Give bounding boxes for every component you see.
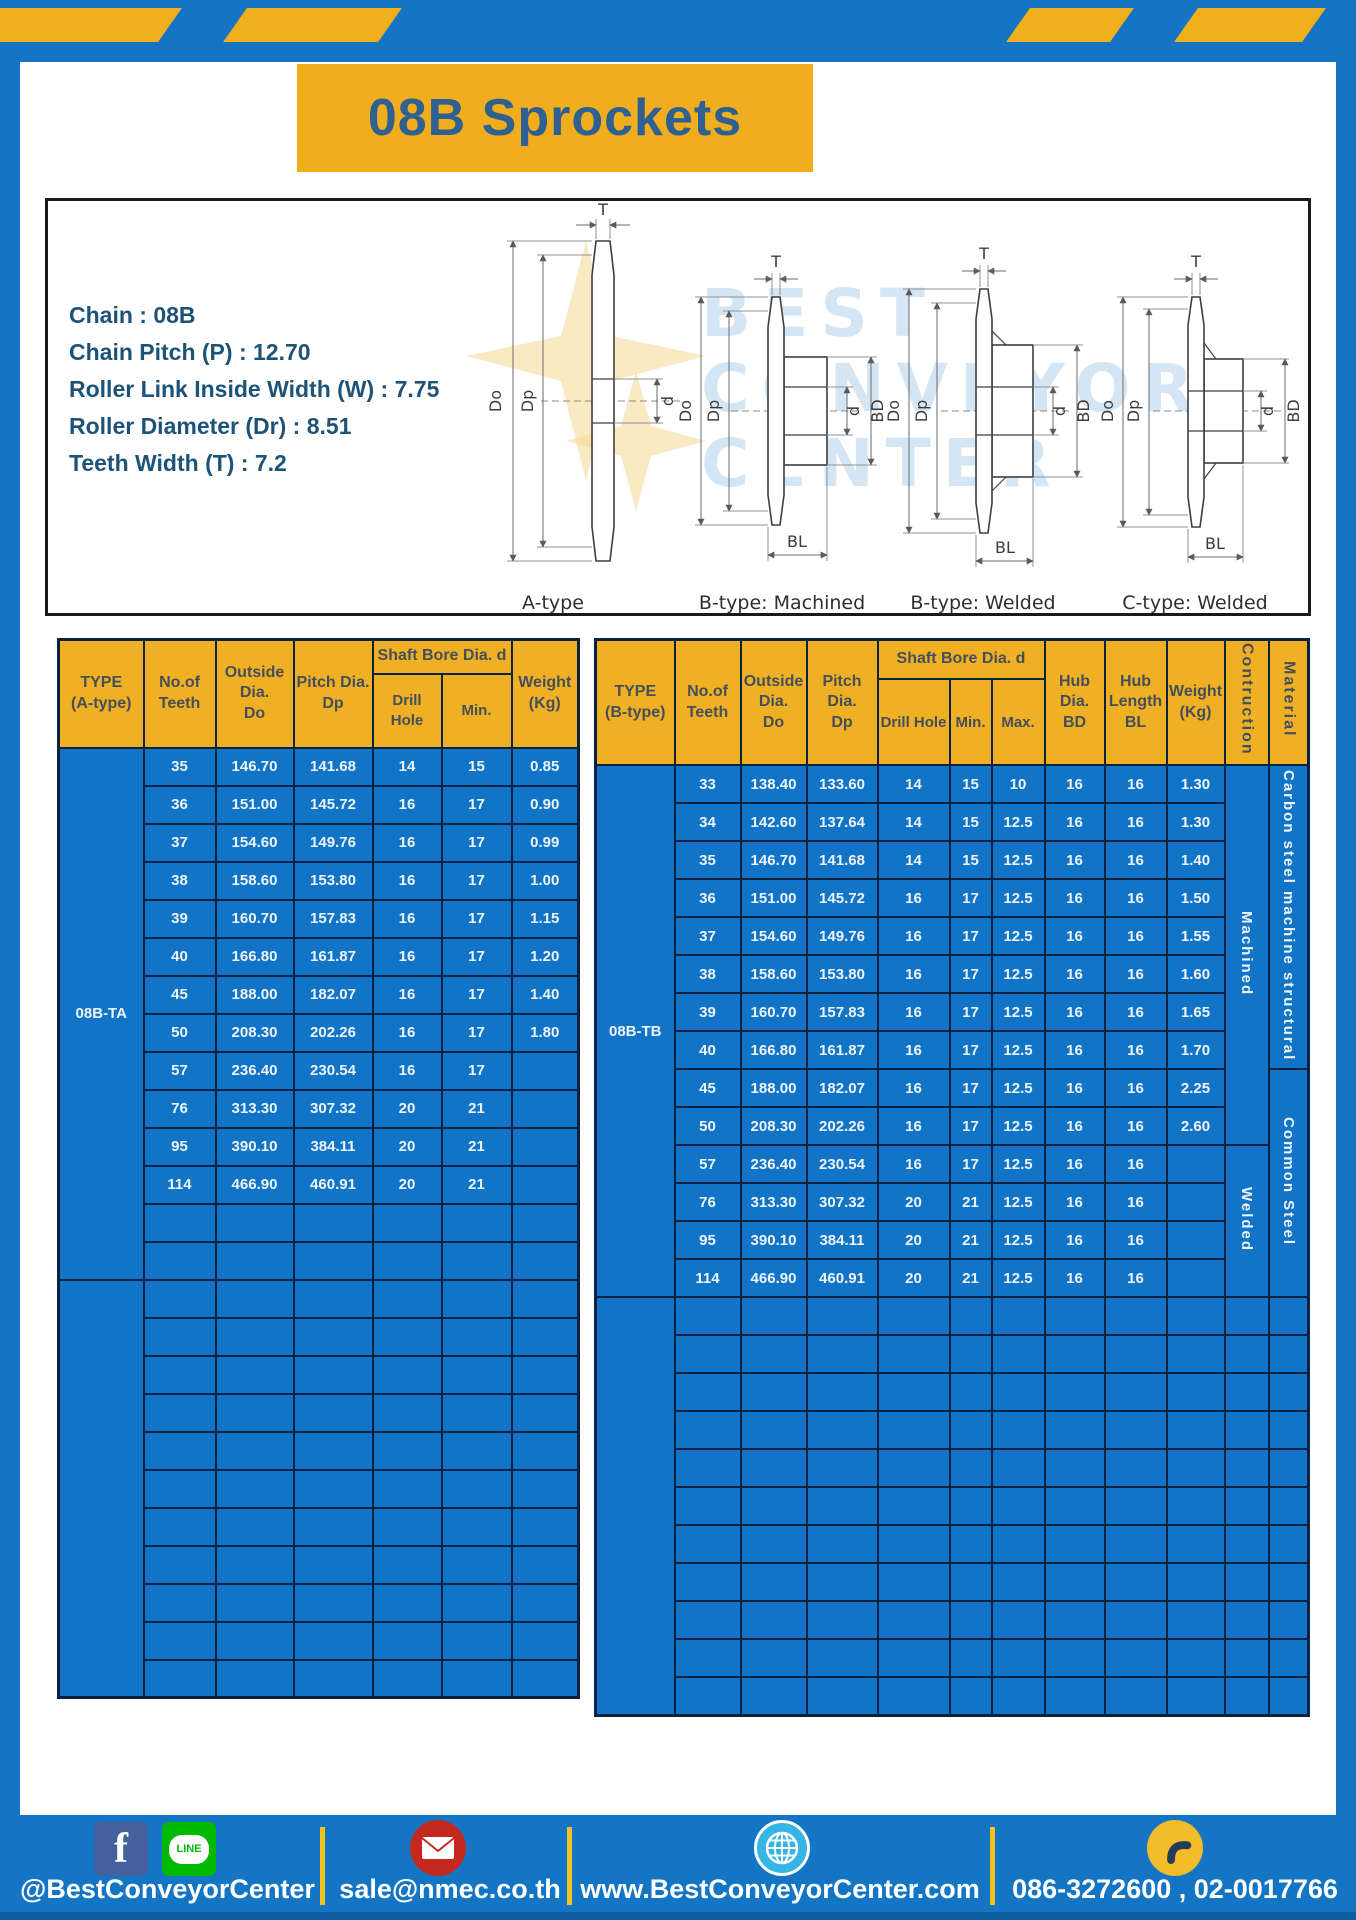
dim-hub-length: BL <box>995 538 1015 557</box>
construction-cell-label: Welded <box>1239 1187 1254 1252</box>
empty-cell <box>992 1487 1045 1525</box>
data-cell: 14 <box>878 803 950 841</box>
table-row <box>596 1373 1309 1411</box>
empty-cell <box>216 1660 294 1698</box>
data-cell: 182.07 <box>294 976 373 1014</box>
dim-pitch-dia: Dp <box>704 400 723 422</box>
label-c-type-welded: C-type: Welded <box>1122 592 1267 614</box>
data-cell: 16 <box>373 938 442 976</box>
data-cell: 16 <box>1045 803 1105 841</box>
empty-cell <box>950 1411 992 1449</box>
table-row <box>596 1639 1309 1677</box>
data-cell: 230.54 <box>294 1052 373 1090</box>
empty-cell <box>950 1677 992 1715</box>
data-cell <box>512 1204 579 1242</box>
empty-cell <box>216 1432 294 1470</box>
dim-outside-dia: Do <box>486 390 505 412</box>
data-cell: 166.80 <box>216 938 294 976</box>
empty-cell <box>216 1280 294 1318</box>
data-cell: 149.76 <box>294 824 373 862</box>
data-cell: 208.30 <box>741 1107 807 1145</box>
empty-cell <box>878 1525 950 1563</box>
empty-cell <box>741 1487 807 1525</box>
empty-cell <box>1269 1525 1309 1563</box>
table-row <box>59 1280 579 1318</box>
data-cell: 313.30 <box>741 1183 807 1221</box>
footer-website[interactable]: www.BestConveyorCenter.com <box>560 1874 1000 1905</box>
empty-cell <box>1167 1373 1225 1411</box>
empty-cell <box>675 1487 741 1525</box>
table-row: 08B-TA35146.70141.6814150.85 <box>59 748 579 786</box>
data-cell: 14 <box>878 841 950 879</box>
dim-hub-length: BL <box>787 532 807 551</box>
data-cell: 17 <box>442 976 512 1014</box>
empty-cell <box>741 1525 807 1563</box>
empty-cell <box>1167 1601 1225 1639</box>
empty-cell <box>1045 1449 1105 1487</box>
data-cell: 0.99 <box>512 824 579 862</box>
empty-cell <box>294 1470 373 1508</box>
data-cell: 142.60 <box>741 803 807 841</box>
data-cell: 1.30 <box>1167 765 1225 803</box>
empty-cell <box>992 1677 1045 1715</box>
data-cell: 12.5 <box>992 1259 1045 1297</box>
empty-cell <box>442 1470 512 1508</box>
empty-cell <box>512 1546 579 1584</box>
data-cell: 16 <box>1105 1031 1167 1069</box>
col-header-material: Material <box>1269 640 1309 766</box>
table-row <box>596 1563 1309 1601</box>
data-cell: 460.91 <box>294 1166 373 1204</box>
table-row: 95390.10384.11202112.51616 <box>596 1221 1309 1259</box>
data-cell: 307.32 <box>294 1090 373 1128</box>
empty-cell <box>992 1373 1045 1411</box>
empty-cell <box>144 1546 216 1584</box>
page-border-right <box>1336 0 1356 1920</box>
empty-cell <box>807 1411 878 1449</box>
data-cell <box>144 1204 216 1242</box>
data-cell: 182.07 <box>807 1069 878 1107</box>
footer-social-handle[interactable]: @BestConveyorCenter <box>20 1874 300 1905</box>
table-row: 36151.00145.72161712.516161.50 <box>596 879 1309 917</box>
footer-divider <box>320 1827 325 1905</box>
footer-phones[interactable]: 086-3272600 , 02-0017766 <box>1010 1874 1340 1905</box>
data-cell: 146.70 <box>741 841 807 879</box>
empty-cell <box>512 1660 579 1698</box>
empty-cell <box>741 1677 807 1715</box>
phone-icon[interactable] <box>1147 1820 1203 1876</box>
empty-cell <box>950 1335 992 1373</box>
data-cell: 57 <box>144 1052 216 1090</box>
empty-cell <box>675 1677 741 1715</box>
col-header-weight: Weight (Kg) <box>1167 640 1225 766</box>
empty-cell <box>373 1660 442 1698</box>
dim-hub-dia: BD <box>1284 399 1303 422</box>
data-cell: 137.64 <box>807 803 878 841</box>
empty-cell <box>294 1356 373 1394</box>
data-cell: 16 <box>1045 765 1105 803</box>
data-cell: 20 <box>373 1128 442 1166</box>
type-cell: 08B-TB <box>596 765 675 1297</box>
empty-cell <box>1167 1677 1225 1715</box>
data-cell: 466.90 <box>741 1259 807 1297</box>
data-cell: 149.76 <box>807 917 878 955</box>
empty-cell <box>216 1394 294 1432</box>
empty-cell <box>675 1639 741 1677</box>
data-cell: 16 <box>1105 841 1167 879</box>
data-cell: 208.30 <box>216 1014 294 1052</box>
type-cell: 08B-TA <box>59 748 144 1280</box>
empty-cell <box>1105 1297 1167 1335</box>
empty-cell <box>294 1280 373 1318</box>
empty-cell <box>144 1394 216 1432</box>
data-cell: 151.00 <box>741 879 807 917</box>
empty-cell <box>807 1639 878 1677</box>
data-cell: 17 <box>442 900 512 938</box>
data-cell: 16 <box>1105 765 1167 803</box>
data-cell: 20 <box>373 1090 442 1128</box>
dim-teeth-width: T <box>978 244 989 263</box>
empty-cell <box>512 1622 579 1660</box>
handset-glyph <box>1153 1826 1197 1870</box>
data-cell: 16 <box>1045 1145 1105 1183</box>
empty-cell <box>144 1356 216 1394</box>
dim-bore: d <box>658 396 677 406</box>
data-cell: 16 <box>1105 917 1167 955</box>
data-cell: 145.72 <box>294 786 373 824</box>
empty-cell <box>807 1677 878 1715</box>
empty-cell <box>1269 1297 1309 1335</box>
data-cell: 16 <box>878 1107 950 1145</box>
data-cell: 1.80 <box>512 1014 579 1052</box>
data-cell: 10 <box>992 765 1045 803</box>
table-row: 39160.70157.83161712.516161.65 <box>596 993 1309 1031</box>
data-cell: 16 <box>1045 993 1105 1031</box>
table-row: 38158.60153.80161712.516161.60 <box>596 955 1309 993</box>
data-cell: 39 <box>144 900 216 938</box>
table-row: 114466.90460.91202112.51616 <box>596 1259 1309 1297</box>
empty-cell <box>144 1280 216 1318</box>
dim-outside-dia: Do <box>1098 400 1117 422</box>
empty-cell <box>807 1449 878 1487</box>
data-cell <box>373 1242 442 1280</box>
empty-cell <box>1269 1563 1309 1601</box>
data-cell: 12.5 <box>992 993 1045 1031</box>
empty-cell <box>878 1373 950 1411</box>
data-cell: 17 <box>442 824 512 862</box>
dim-pitch-dia: Dp <box>518 390 537 412</box>
footer-bottom-edge <box>0 1912 1356 1920</box>
empty-cell <box>1269 1639 1309 1677</box>
empty-cell <box>950 1639 992 1677</box>
construction-cell: Machined <box>1225 765 1269 1145</box>
col-header-teeth: No.of Teeth <box>675 640 741 766</box>
data-cell: 146.70 <box>216 748 294 786</box>
empty-cell <box>950 1563 992 1601</box>
email-icon[interactable] <box>410 1820 466 1876</box>
data-cell: 16 <box>878 993 950 1031</box>
data-cell <box>1167 1183 1225 1221</box>
data-cell <box>512 1128 579 1166</box>
footer-email[interactable]: sale@nmec.co.th <box>330 1874 570 1905</box>
empty-cell <box>294 1622 373 1660</box>
data-cell: 39 <box>675 993 741 1031</box>
empty-cell <box>373 1318 442 1356</box>
empty-cell <box>950 1373 992 1411</box>
empty-cell <box>1105 1639 1167 1677</box>
watermark-word: BEST <box>701 275 937 352</box>
data-cell: 15 <box>442 748 512 786</box>
empty-cell <box>294 1432 373 1470</box>
data-cell <box>216 1204 294 1242</box>
data-cell: 38 <box>675 955 741 993</box>
col-header-outside-dia: Outside Dia. Do <box>216 640 294 748</box>
data-cell: 17 <box>950 917 992 955</box>
header-row: TYPE (B-type) No.of Teeth Outside Dia. D… <box>596 640 1309 680</box>
data-cell: 390.10 <box>741 1221 807 1259</box>
empty-cell <box>442 1356 512 1394</box>
data-cell: 21 <box>442 1128 512 1166</box>
data-cell: 40 <box>144 938 216 976</box>
spec-teeth-width: Teeth Width (T) : 7.2 <box>69 445 439 482</box>
data-cell: 20 <box>878 1259 950 1297</box>
data-cell: 17 <box>442 1014 512 1052</box>
data-cell <box>512 1052 579 1090</box>
data-cell: 16 <box>878 917 950 955</box>
data-cell: 16 <box>878 879 950 917</box>
empty-cell <box>512 1356 579 1394</box>
chain-specifications: Chain : 08B Chain Pitch (P) : 12.70 Roll… <box>69 297 439 482</box>
empty-cell <box>216 1584 294 1622</box>
data-cell: 14 <box>878 765 950 803</box>
empty-cell <box>442 1318 512 1356</box>
empty-cell <box>675 1411 741 1449</box>
data-cell <box>294 1242 373 1280</box>
empty-cell <box>373 1432 442 1470</box>
facebook-icon[interactable]: f <box>94 1822 148 1876</box>
data-cell: 95 <box>675 1221 741 1259</box>
data-cell: 384.11 <box>294 1128 373 1166</box>
data-cell: 12.5 <box>992 1031 1045 1069</box>
empty-cell <box>807 1601 878 1639</box>
empty-cell <box>1269 1677 1309 1715</box>
empty-cell <box>950 1487 992 1525</box>
col-header-type: TYPE (A-type) <box>59 640 144 748</box>
data-cell: 76 <box>675 1183 741 1221</box>
empty-cell <box>992 1335 1045 1373</box>
data-cell: 36 <box>675 879 741 917</box>
data-cell: 460.91 <box>807 1259 878 1297</box>
data-cell: 16 <box>373 900 442 938</box>
empty-cell <box>373 1622 442 1660</box>
empty-cell <box>1269 1411 1309 1449</box>
data-cell: 16 <box>1045 841 1105 879</box>
empty-cell <box>144 1318 216 1356</box>
empty-cell <box>878 1449 950 1487</box>
data-cell: 17 <box>442 786 512 824</box>
data-cell: 1.70 <box>1167 1031 1225 1069</box>
empty-cell <box>1167 1639 1225 1677</box>
data-cell: 16 <box>1105 955 1167 993</box>
data-cell <box>442 1242 512 1280</box>
data-cell: 16 <box>1045 955 1105 993</box>
data-cell: 188.00 <box>216 976 294 1014</box>
line-app-icon[interactable]: LINE <box>162 1822 216 1876</box>
empty-cell <box>992 1525 1045 1563</box>
spec-roller-diameter: Roller Diameter (Dr) : 8.51 <box>69 408 439 445</box>
data-cell: 202.26 <box>807 1107 878 1145</box>
empty-cell <box>741 1601 807 1639</box>
empty-cell <box>1225 1411 1269 1449</box>
empty-cell <box>1105 1335 1167 1373</box>
empty-cell <box>1225 1373 1269 1411</box>
empty-cell <box>675 1601 741 1639</box>
empty-cell <box>1167 1449 1225 1487</box>
material-cell-label: Carbon steel machine structural <box>1281 770 1296 1061</box>
globe-glyph <box>762 1828 802 1868</box>
table-row: 45188.00182.07161712.516162.25Common Ste… <box>596 1069 1309 1107</box>
col-header-max: Max. <box>992 679 1045 765</box>
empty-cell <box>992 1297 1045 1335</box>
page-border-left <box>0 0 20 1920</box>
sprocket-technical-drawings: BEST CONVEYOR CENTER Do Dp T <box>401 201 1311 617</box>
data-cell: 153.80 <box>807 955 878 993</box>
empty-cell <box>1045 1411 1105 1449</box>
data-cell: 21 <box>442 1166 512 1204</box>
dim-pitch-dia: Dp <box>912 400 931 422</box>
data-cell: 16 <box>1105 803 1167 841</box>
empty-cell <box>294 1318 373 1356</box>
type-cell <box>596 1297 675 1715</box>
dim-bore: d <box>844 406 863 416</box>
empty-cell <box>1105 1525 1167 1563</box>
empty-cell <box>373 1584 442 1622</box>
empty-cell <box>878 1563 950 1601</box>
data-cell: 16 <box>1045 1221 1105 1259</box>
table-row: 37154.60149.76161712.516161.55 <box>596 917 1309 955</box>
empty-cell <box>1269 1373 1309 1411</box>
data-cell: 1.50 <box>1167 879 1225 917</box>
band-stripe <box>0 8 182 42</box>
empty-cell <box>1269 1601 1309 1639</box>
empty-cell <box>1045 1677 1105 1715</box>
empty-cell <box>1167 1335 1225 1373</box>
data-cell: 37 <box>144 824 216 862</box>
col-header-hub-length: Hub Length BL <box>1105 640 1167 766</box>
col-header-construction: Contruction <box>1225 640 1269 766</box>
data-cell: 16 <box>1105 879 1167 917</box>
empty-cell <box>1225 1449 1269 1487</box>
data-cell: 20 <box>878 1183 950 1221</box>
data-cell: 16 <box>1105 1221 1167 1259</box>
table-a-type-sprockets: TYPE (A-type) No.of Teeth Outside Dia. D… <box>57 638 580 1699</box>
data-cell: 384.11 <box>807 1221 878 1259</box>
data-cell: 16 <box>1045 879 1105 917</box>
data-cell: 1.60 <box>1167 955 1225 993</box>
empty-cell <box>1105 1373 1167 1411</box>
empty-cell <box>144 1470 216 1508</box>
empty-cell <box>1045 1297 1105 1335</box>
table-row: 35146.70141.68141512.516161.40 <box>596 841 1309 879</box>
empty-cell <box>1045 1601 1105 1639</box>
col-header-teeth: No.of Teeth <box>144 640 216 748</box>
dim-outside-dia: Do <box>884 400 903 422</box>
data-cell: 15 <box>950 841 992 879</box>
label-b-type-welded: B-type: Welded <box>910 592 1055 614</box>
empty-cell <box>216 1546 294 1584</box>
empty-cell <box>144 1660 216 1698</box>
empty-cell <box>1167 1297 1225 1335</box>
empty-cell <box>878 1639 950 1677</box>
data-cell: 133.60 <box>807 765 878 803</box>
empty-cell <box>1045 1373 1105 1411</box>
material-cell: Carbon steel machine structural <box>1269 765 1309 1069</box>
data-cell: 17 <box>442 938 512 976</box>
data-cell: 1.20 <box>512 938 579 976</box>
table-row <box>596 1449 1309 1487</box>
table-row <box>596 1525 1309 1563</box>
band-stripe <box>1174 8 1326 42</box>
data-cell: 313.30 <box>216 1090 294 1128</box>
empty-cell <box>294 1546 373 1584</box>
empty-cell <box>1167 1411 1225 1449</box>
line-bubble: LINE <box>169 1835 209 1864</box>
data-cell: 1.00 <box>512 862 579 900</box>
data-cell: 50 <box>675 1107 741 1145</box>
data-cell: 37 <box>675 917 741 955</box>
data-cell: 188.00 <box>741 1069 807 1107</box>
data-cell: 57 <box>675 1145 741 1183</box>
empty-cell <box>950 1449 992 1487</box>
empty-cell <box>442 1584 512 1622</box>
empty-cell <box>1105 1563 1167 1601</box>
band-stripe <box>1006 8 1134 42</box>
empty-cell <box>807 1297 878 1335</box>
data-cell: 16 <box>373 1014 442 1052</box>
data-cell: 17 <box>950 993 992 1031</box>
empty-cell <box>992 1449 1045 1487</box>
empty-cell <box>1105 1449 1167 1487</box>
empty-cell <box>373 1470 442 1508</box>
empty-cell <box>1167 1487 1225 1525</box>
table-row: 50208.30202.26161712.516162.60 <box>596 1107 1309 1145</box>
data-cell: 33 <box>675 765 741 803</box>
col-header-construction-label: Contruction <box>1239 643 1255 756</box>
data-cell: 16 <box>1105 1069 1167 1107</box>
data-cell: 20 <box>878 1221 950 1259</box>
empty-cell <box>373 1394 442 1432</box>
label-b-type-machined: B-type: Machined <box>699 592 865 614</box>
footer-divider <box>990 1827 995 1905</box>
empty-cell <box>1167 1563 1225 1601</box>
data-cell <box>1167 1259 1225 1297</box>
dim-hub-length: BL <box>1205 534 1225 553</box>
empty-cell <box>512 1280 579 1318</box>
empty-cell <box>373 1356 442 1394</box>
dim-teeth-width: T <box>1190 252 1201 271</box>
globe-icon[interactable] <box>754 1820 810 1876</box>
data-cell: 114 <box>144 1166 216 1204</box>
data-cell: 202.26 <box>294 1014 373 1052</box>
empty-cell <box>442 1432 512 1470</box>
data-cell: 17 <box>442 862 512 900</box>
data-cell: 17 <box>950 879 992 917</box>
watermark-logo: BEST CONVEYOR CENTER <box>466 241 1205 511</box>
empty-cell <box>294 1584 373 1622</box>
data-cell: 17 <box>950 1069 992 1107</box>
empty-cell <box>992 1411 1045 1449</box>
col-header-type: TYPE (B-type) <box>596 640 675 766</box>
